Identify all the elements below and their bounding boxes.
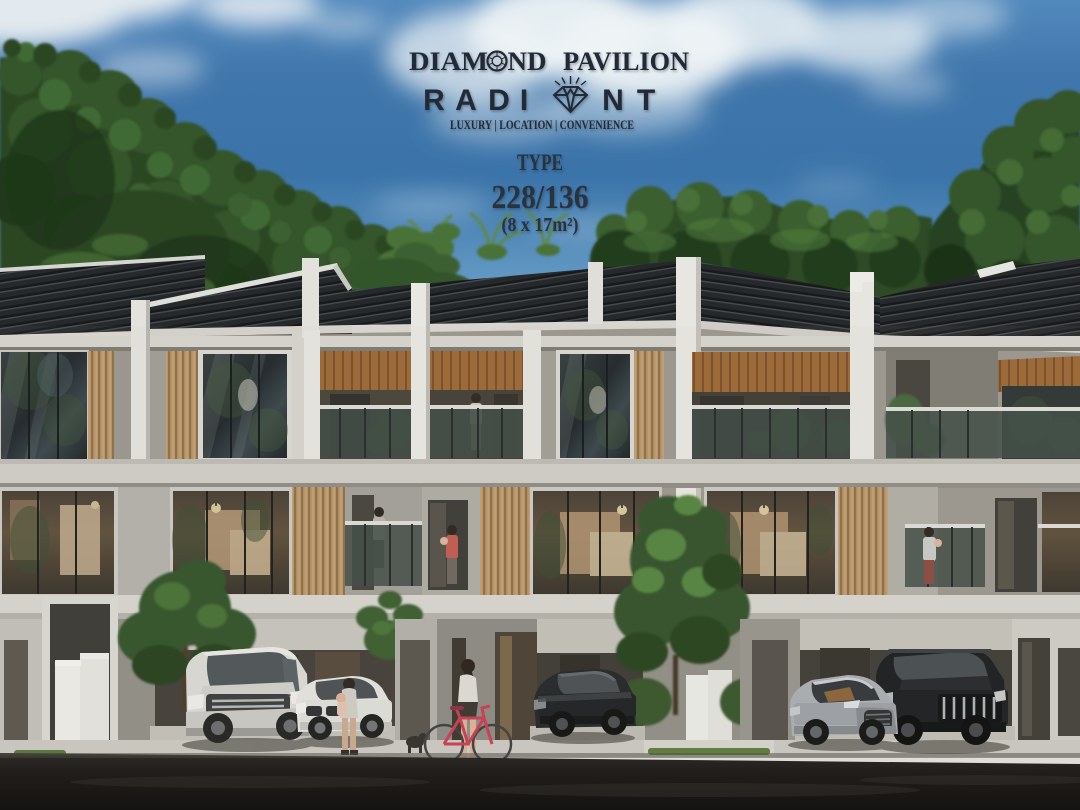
svg-text:PAVILION: PAVILION <box>563 46 689 76</box>
svg-text:R: R <box>423 84 445 117</box>
svg-text:DIAM: DIAM <box>409 46 488 76</box>
svg-text:T: T <box>637 84 655 117</box>
svg-text:TYPE: TYPE <box>517 150 563 175</box>
svg-text:N: N <box>602 84 624 117</box>
svg-text:LUXURY | LOCATION | CONVENIENC: LUXURY | LOCATION | CONVENIENCE <box>450 118 634 132</box>
svg-text:A: A <box>455 84 477 117</box>
svg-text:ND: ND <box>508 46 547 76</box>
svg-text:I: I <box>520 84 528 117</box>
svg-text:D: D <box>488 84 510 117</box>
svg-text:228/136: 228/136 <box>492 179 589 216</box>
svg-text:(8 x 17m²): (8 x 17m²) <box>502 214 579 236</box>
